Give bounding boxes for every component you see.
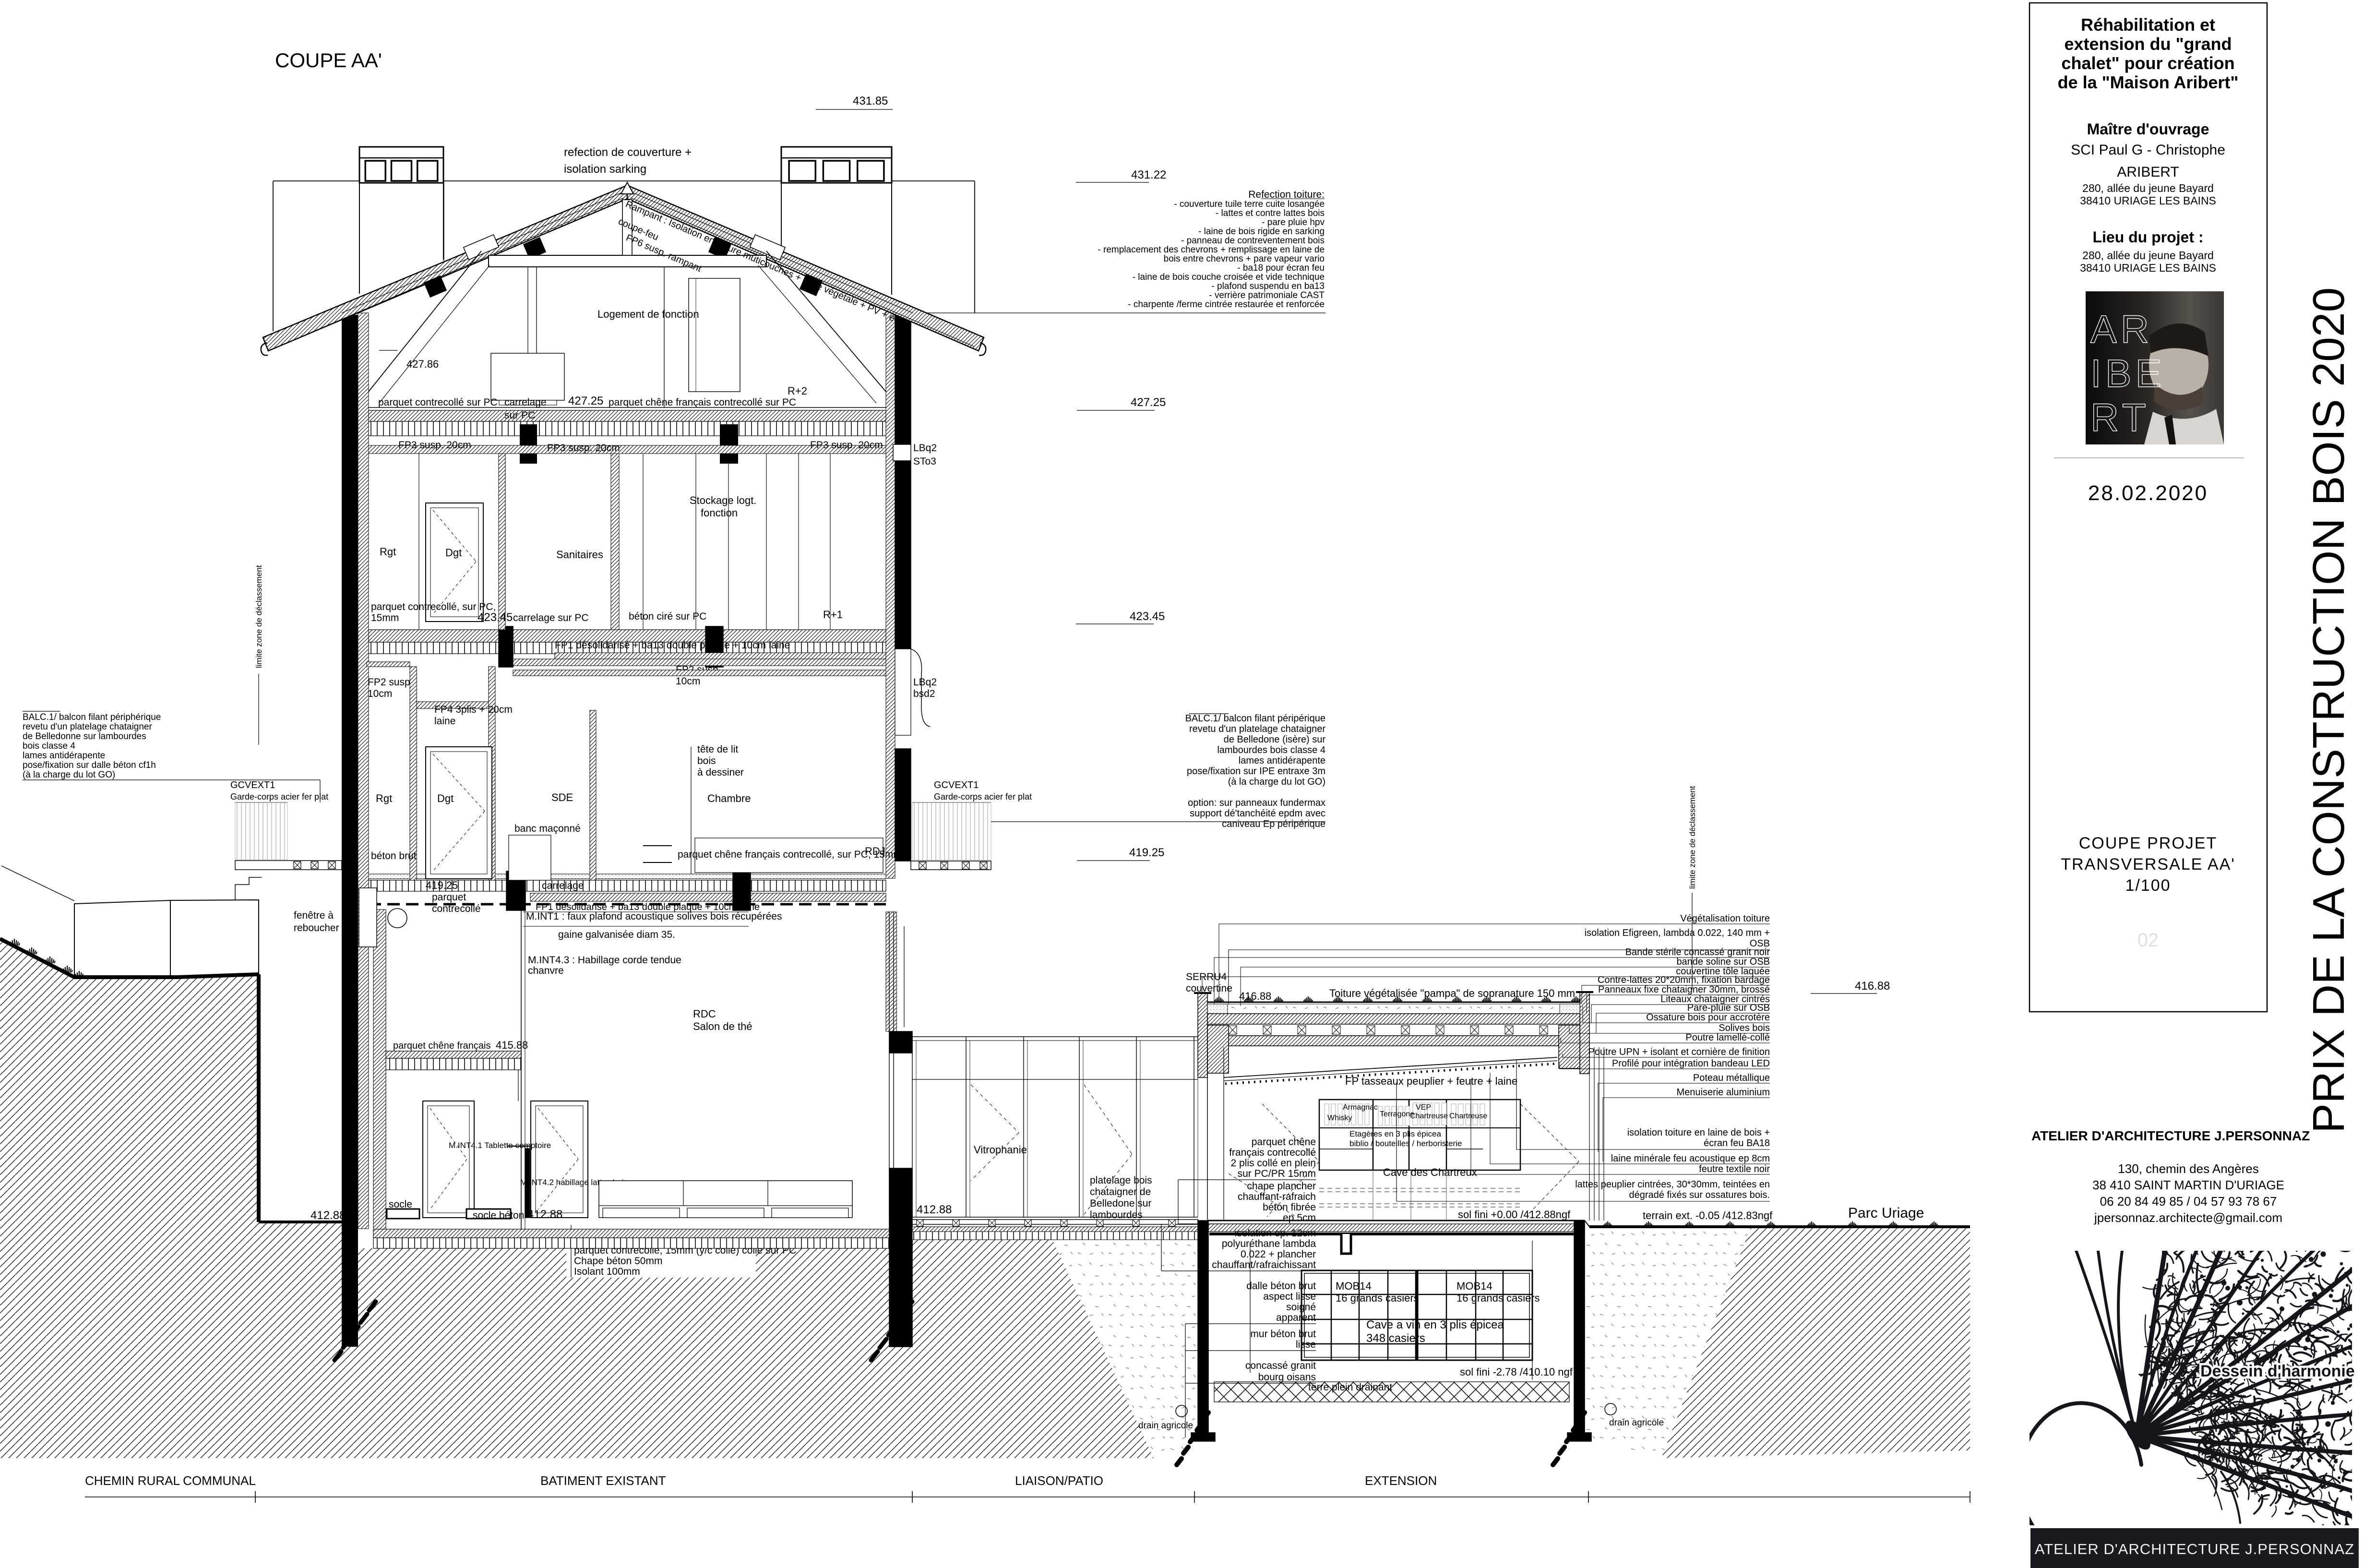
svg-text:VEP: VEP — [1416, 1103, 1431, 1112]
svg-text:R+2: R+2 — [788, 385, 807, 397]
svg-text:412.88: 412.88 — [527, 1208, 562, 1221]
svg-text:support dé'tanchéité epdm avec: support dé'tanchéité epdm avec — [1190, 808, 1325, 819]
svg-text:terre plein drainant: terre plein drainant — [1308, 1382, 1392, 1393]
svg-text:10cm: 10cm — [676, 676, 700, 687]
svg-text:416.88: 416.88 — [1855, 980, 1890, 993]
svg-text:apparent: apparent — [1276, 1312, 1316, 1323]
svg-text:bois: bois — [697, 755, 716, 766]
svg-text:- plafond suspendu en ba13: - plafond suspendu en ba13 — [1211, 281, 1325, 291]
svg-text:carrelage sur PC: carrelage sur PC — [513, 612, 589, 623]
svg-text:reboucher: reboucher — [294, 922, 339, 934]
svg-text:MOB14: MOB14 — [1457, 1280, 1492, 1292]
svg-text:348 casiers: 348 casiers — [1366, 1332, 1425, 1345]
svg-text:416.88: 416.88 — [1239, 990, 1271, 1002]
svg-text:parquet contrecollé sur PC: parquet contrecollé sur PC — [378, 397, 498, 408]
svg-text:- laine de bois couche croisée: - laine de bois couche croisée et vide t… — [1133, 272, 1325, 282]
svg-text:02: 02 — [2137, 930, 2159, 951]
svg-text:ep 5cm: ep 5cm — [1283, 1212, 1316, 1223]
svg-text:aspect lisse: aspect lisse — [1263, 1291, 1316, 1302]
svg-text:419.25: 419.25 — [426, 879, 458, 891]
svg-text:Garde-corps acier fer plat: Garde-corps acier fer plat — [230, 792, 328, 802]
svg-text:dégradé fixés sur ossatures bo: dégradé fixés sur ossatures bois. — [1629, 1190, 1770, 1200]
svg-text:423.45: 423.45 — [1130, 610, 1165, 623]
svg-text:427.25: 427.25 — [1131, 396, 1166, 409]
svg-text:carrelage: carrelage — [542, 880, 584, 891]
svg-text:LBq2: LBq2 — [913, 677, 937, 688]
svg-text:Bande stérile concassé granit: Bande stérile concassé granit noir — [1625, 947, 1770, 958]
svg-text:FP3 susp. 20cm: FP3 susp. 20cm — [398, 440, 471, 451]
svg-text:option: sur panneaux fundermax: option: sur panneaux fundermax — [1188, 798, 1325, 808]
svg-text:terrain ext. -0.05 /412.83ngf: terrain ext. -0.05 /412.83ngf — [1643, 1209, 1773, 1221]
svg-text:Dgt: Dgt — [437, 792, 454, 804]
svg-text:limite zone de déclassement: limite zone de déclassement — [1688, 786, 1697, 889]
svg-text:sur PC/PR 15mm: sur PC/PR 15mm — [1238, 1168, 1316, 1179]
svg-text:bande soline sur OSB: bande soline sur OSB — [1676, 957, 1770, 967]
svg-text:isolation Efigreen, lambda 0.0: isolation Efigreen, lambda 0.022, 140 mm… — [1585, 928, 1770, 938]
svg-text:412.88: 412.88 — [917, 1203, 952, 1216]
svg-text:Dgt: Dgt — [445, 547, 462, 559]
svg-text:415.88: 415.88 — [496, 1039, 528, 1051]
svg-text:sol fini -2.78 /410.10 ngf: sol fini -2.78 /410.10 ngf — [1460, 1366, 1573, 1378]
svg-text:PRIX DE LA CONSTRUCTION BOIS 2: PRIX DE LA CONSTRUCTION BOIS 2020 — [2304, 287, 2353, 1133]
svg-text:FP3 susp. 20cm: FP3 susp. 20cm — [810, 440, 883, 451]
svg-text:130, chemin des Angères: 130, chemin des Angères — [2118, 1161, 2258, 1176]
svg-text:Poteau métallique: Poteau métallique — [1693, 1073, 1770, 1083]
svg-text:Solives bois: Solives bois — [1719, 1023, 1770, 1033]
svg-text:LIAISON/PATIO: LIAISON/PATIO — [1015, 1473, 1103, 1488]
svg-text:- pare pluie hpv: - pare pluie hpv — [1262, 217, 1325, 227]
svg-text:Maître d'ouvrage: Maître d'ouvrage — [2087, 120, 2209, 138]
svg-text:Chape béton 50mm: Chape béton 50mm — [574, 1256, 662, 1267]
svg-text:bourg oisans: bourg oisans — [1258, 1372, 1316, 1383]
svg-text:Dessein d'harmonie: Dessein d'harmonie — [2200, 1362, 2355, 1380]
svg-text:chauffant/rafraichissant: chauffant/rafraichissant — [1212, 1259, 1316, 1270]
svg-text:AR: AR — [2090, 308, 2153, 351]
svg-text:- lattes et contre lattes bois: - lattes et contre lattes bois — [1216, 208, 1325, 218]
svg-text:chauffant-rafraich: chauffant-rafraich — [1238, 1191, 1316, 1202]
svg-text:ARIBERT: ARIBERT — [2117, 164, 2179, 180]
svg-text:fenêtre à: fenêtre à — [294, 910, 334, 921]
svg-text:chataigner de: chataigner de — [1090, 1186, 1151, 1197]
svg-text:banc maçonné: banc maçonné — [514, 823, 581, 834]
svg-text:STo3: STo3 — [913, 456, 936, 467]
svg-text:Isolant 100mm: Isolant 100mm — [574, 1266, 640, 1277]
svg-text:FP4 3plis + 20cm: FP4 3plis + 20cm — [434, 704, 513, 715]
svg-text:pose/fixation sur dalle béton: pose/fixation sur dalle béton cf1h — [23, 760, 156, 770]
svg-text:platelage bois: platelage bois — [1090, 1175, 1152, 1186]
svg-text:- couverture tuile terre cuite: - couverture tuile terre cuite losangée — [1174, 199, 1325, 209]
svg-text:Logement de fonction: Logement de fonction — [597, 308, 699, 320]
svg-text:mur béton brut: mur béton brut — [1250, 1329, 1316, 1340]
svg-text:lames antidérapente: lames antidérapente — [23, 751, 105, 761]
svg-text:Rgt: Rgt — [380, 546, 396, 558]
svg-text:à dessiner: à dessiner — [697, 767, 744, 778]
svg-text:pose/fixation sur IPE entraxe: pose/fixation sur IPE entraxe 3m — [1187, 766, 1325, 777]
svg-text:RT: RT — [2090, 396, 2150, 440]
svg-text:FP6 susp. rampant: FP6 susp. rampant — [624, 232, 703, 274]
svg-text:Cave a vin en 3 plis épicea: Cave a vin en 3 plis épicea — [1366, 1318, 1504, 1331]
svg-text:concassé granit: concassé granit — [1245, 1360, 1316, 1371]
svg-text:28.02.2020: 28.02.2020 — [2088, 481, 2208, 505]
svg-text:(à la charge du lot GO): (à la charge du lot GO) — [1228, 777, 1325, 787]
svg-text:38 410 SAINT MARTIN D'URIAGE: 38 410 SAINT MARTIN D'URIAGE — [2092, 1178, 2284, 1192]
svg-text:socle béton: socle béton — [473, 1210, 524, 1221]
svg-text:GCVEXT1: GCVEXT1 — [230, 780, 275, 790]
svg-text:M.INT4.3 : Habillage corde ten: M.INT4.3 : Habillage corde tendue — [528, 955, 681, 966]
svg-text:SCI Paul G - Christophe: SCI Paul G - Christophe — [2071, 142, 2225, 158]
svg-text:Profilé pour intégration bande: Profilé pour intégration bandeau LED — [1612, 1058, 1770, 1069]
svg-text:Etagères en 3 plis épicea: Etagères en 3 plis épicea — [1349, 1129, 1441, 1138]
svg-text:1/100: 1/100 — [2125, 876, 2171, 895]
svg-text:CHEMIN RURAL COMMUNAL: CHEMIN RURAL COMMUNAL — [85, 1473, 256, 1488]
svg-text:Belledone sur: Belledone sur — [1090, 1198, 1151, 1209]
svg-text:16 grands casiers: 16 grands casiers — [1336, 1292, 1419, 1304]
svg-text:- panneau de contreventement b: - panneau de contreventement bois — [1181, 236, 1325, 246]
svg-text:GCVEXT1: GCVEXT1 — [934, 780, 979, 790]
svg-text:419.25: 419.25 — [1129, 846, 1164, 859]
svg-text:refection de couverture +: refection de couverture + — [564, 146, 692, 159]
svg-text:chape plancher: chape plancher — [1247, 1181, 1316, 1192]
svg-text:- remplacement des chevrons +: - remplacement des chevrons + remplissag… — [1098, 245, 1325, 255]
svg-text:contrecollé: contrecollé — [432, 903, 481, 914]
svg-text:Whisky: Whisky — [1327, 1114, 1352, 1122]
svg-text:- ba18 pour écran feu: - ba18 pour écran feu — [1237, 263, 1325, 273]
svg-text:limite zone de déclassement: limite zone de déclassement — [254, 565, 263, 668]
svg-text:sol fini +0.00 /412.88ngf: sol fini +0.00 /412.88ngf — [1458, 1209, 1571, 1221]
svg-text:de Belledonne sur lambourdes: de Belledonne sur lambourdes — [23, 731, 146, 742]
svg-text:Garde-corps acier fer plat: Garde-corps acier fer plat — [934, 792, 1032, 802]
svg-text:parquet: parquet — [432, 892, 466, 903]
svg-text:Salon de thé: Salon de thé — [693, 1020, 752, 1032]
svg-text:laine: laine — [434, 716, 455, 727]
svg-text:lattes peuplier cintrées, 30*3: lattes peuplier cintrées, 30*30mm, teint… — [1575, 1179, 1770, 1190]
svg-text:(à la charge du lot GO): (à la charge du lot GO) — [23, 770, 115, 780]
svg-text:tête de lit: tête de lit — [697, 744, 738, 755]
svg-text:biblio / bouteilles / herboris: biblio / bouteilles / herboristerie — [1349, 1139, 1462, 1148]
svg-text:béton fibrée: béton fibrée — [1263, 1202, 1316, 1213]
svg-text:Stockage logt.: Stockage logt. — [690, 494, 756, 506]
svg-text:M.INT4.1 Tablette comptoire: M.INT4.1 Tablette comptoire — [449, 1141, 551, 1150]
svg-text:parquet chêne français contrec: parquet chêne français contrecollé sur P… — [609, 397, 796, 408]
svg-text:Chartreuse: Chartreuse — [1449, 1112, 1487, 1120]
svg-text:Panneaux fixe chataigner 30mm,: Panneaux fixe chataigner 30mm, brossé — [1598, 984, 1770, 995]
svg-text:Poutre UPN + isolant et corniè: Poutre UPN + isolant et cornière de fini… — [1588, 1047, 1770, 1057]
svg-text:431.22: 431.22 — [1131, 168, 1166, 181]
svg-text:Réhabilitation et: Réhabilitation et — [2081, 15, 2215, 35]
svg-text:jpersonnaz.architecte@gmail.co: jpersonnaz.architecte@gmail.com — [2094, 1210, 2282, 1225]
svg-text:isolation toiture en laine de: isolation toiture en laine de bois + — [1627, 1127, 1770, 1138]
svg-text:Chambre: Chambre — [707, 792, 751, 804]
svg-text:Végétalisation toiture: Végétalisation toiture — [1680, 913, 1770, 924]
svg-text:lisse: lisse — [1296, 1339, 1316, 1350]
svg-text:Sanitaires: Sanitaires — [556, 549, 603, 561]
svg-text:COUPE AA': COUPE AA' — [275, 49, 382, 72]
svg-text:Toiture végétalisée "pampa" de: Toiture végétalisée "pampa" de sopranatu… — [1329, 987, 1575, 999]
svg-text:FP2 susp.: FP2 susp. — [368, 677, 413, 688]
svg-text:caniveau Ep péripérique: caniveau Ep péripérique — [1222, 819, 1325, 829]
svg-text:423.45: 423.45 — [478, 611, 513, 624]
svg-text:béton brut: béton brut — [371, 850, 417, 862]
svg-text:Chartreuse: Chartreuse — [1410, 1112, 1448, 1120]
svg-text:soigné: soigné — [1286, 1302, 1316, 1313]
svg-text:écran feu BA18: écran feu BA18 — [1704, 1138, 1770, 1149]
svg-text:bois entre chevrons + pare vap: bois entre chevrons + pare vapeur vario — [1164, 254, 1325, 264]
svg-text:FP1 désolidarisé + ba13 double: FP1 désolidarisé + ba13 double plaque + … — [555, 640, 790, 651]
svg-text:0.022 + plancher: 0.022 + plancher — [1241, 1249, 1316, 1260]
svg-text:BATIMENT EXISTANT: BATIMENT EXISTANT — [540, 1473, 666, 1488]
svg-text:38410 URIAGE LES BAINS: 38410 URIAGE LES BAINS — [2080, 262, 2216, 274]
svg-text:feutre textile noir: feutre textile noir — [1699, 1164, 1770, 1174]
svg-text:Terragone: Terragone — [1380, 1110, 1414, 1118]
svg-text:427.86: 427.86 — [406, 358, 439, 370]
svg-text:IBE: IBE — [2090, 352, 2165, 395]
svg-text:RDC: RDC — [693, 1008, 716, 1020]
svg-text:Pare-pluie sur OSB: Pare-pluie sur OSB — [1687, 1003, 1770, 1013]
svg-text:ATELIER D'ARCHITECTURE J.PERSO: ATELIER D'ARCHITECTURE J.PERSONNAZ — [2031, 1128, 2310, 1143]
svg-text:FP3 susp. 20cm: FP3 susp. 20cm — [547, 443, 620, 454]
svg-text:Contre-lattes 20*20mm, fixatio: Contre-lattes 20*20mm, fixation bardage — [1598, 975, 1770, 985]
svg-text:revetu d'un platelage chataign: revetu d'un platelage chataigner — [23, 722, 152, 732]
svg-text:dalle béton brut: dalle béton brut — [1246, 1281, 1316, 1292]
svg-text:412.88: 412.88 — [310, 1209, 346, 1222]
svg-text:COUPE PROJET: COUPE PROJET — [2079, 834, 2217, 852]
svg-text:Menuiserie aluminium: Menuiserie aluminium — [1676, 1087, 1770, 1098]
svg-text:extension du "grand: extension du "grand — [2064, 34, 2232, 54]
svg-text:parquet chêne: parquet chêne — [1252, 1137, 1316, 1148]
svg-text:- verrière patrimoniale CAST: - verrière patrimoniale CAST — [1209, 290, 1325, 300]
svg-text:lambourdes bois classe 4: lambourdes bois classe 4 — [1217, 745, 1325, 755]
svg-text:carrelage: carrelage — [504, 397, 547, 408]
svg-text:chanvre: chanvre — [528, 965, 564, 976]
svg-text:drain agricole: drain agricole — [1138, 1421, 1193, 1431]
svg-text:RDJ: RDJ — [865, 845, 885, 857]
svg-text:polyuréthane lambda: polyuréthane lambda — [1222, 1238, 1316, 1249]
svg-text:lames antidérapente: lames antidérapente — [1239, 755, 1325, 766]
svg-text:- laine de bois rigide en sark: - laine de bois rigide en sarking — [1198, 227, 1325, 237]
svg-text:Cave des Chartreux: Cave des Chartreux — [1383, 1166, 1477, 1178]
svg-text:sur PC: sur PC — [504, 410, 535, 421]
svg-text:427.25: 427.25 — [568, 395, 603, 407]
svg-text:Lieu du projet :: Lieu du projet : — [2092, 228, 2203, 246]
svg-text:français contrecollé: français contrecollé — [1229, 1147, 1316, 1158]
svg-text:de Belledone (isère) sur: de Belledone (isère) sur — [1224, 734, 1326, 745]
svg-text:SDE: SDE — [551, 791, 573, 803]
svg-text:R+1: R+1 — [823, 609, 843, 621]
svg-text:EXTENSION: EXTENSION — [1365, 1473, 1437, 1488]
svg-text:laine minérale feu acoustique: laine minérale feu acoustique ep 8cm — [1611, 1153, 1770, 1164]
svg-text:revetu d'un platelage chataign: revetu d'un platelage chataigner — [1189, 724, 1325, 734]
svg-text:lambourdes: lambourdes — [1090, 1209, 1143, 1221]
svg-text:fonction: fonction — [701, 507, 738, 519]
svg-text:isolation sarking: isolation sarking — [564, 163, 646, 176]
svg-text:LBq2: LBq2 — [913, 443, 937, 454]
svg-text:10cm: 10cm — [368, 688, 392, 699]
svg-text:parquet chêne français: parquet chêne français — [393, 1041, 490, 1051]
svg-text:chalet" pour création: chalet" pour création — [2061, 53, 2234, 73]
svg-text:Parc Uriage: Parc Uriage — [1848, 1205, 1924, 1221]
svg-text:de la "Maison Aribert": de la "Maison Aribert" — [2058, 72, 2239, 92]
svg-text:béton ciré sur PC: béton ciré sur PC — [629, 611, 706, 622]
svg-text:06 20 84 49 85 / 04 57 93 78 6: 06 20 84 49 85 / 04 57 93 78 67 — [2100, 1194, 2277, 1209]
svg-text:- charpente /ferme cintrée res: - charpente /ferme cintrée restaurée et … — [1128, 299, 1325, 310]
svg-text:bsd2: bsd2 — [913, 688, 935, 699]
svg-text:ATELIER D'ARCHITECTURE J.PERSO: ATELIER D'ARCHITECTURE J.PERSONNAZ — [2035, 1541, 2354, 1557]
svg-text:isolation ep. 12cm: isolation ep. 12cm — [1235, 1228, 1316, 1239]
svg-text:Poutre lamellé-collé: Poutre lamellé-collé — [1685, 1032, 1770, 1043]
svg-text:Armagnac: Armagnac — [1343, 1103, 1378, 1112]
svg-text:gaine galvanisée diam 35.: gaine galvanisée diam 35. — [558, 929, 675, 940]
svg-text:FP tasseaux peuplier + feutre: FP tasseaux peuplier + feutre + laine — [1345, 1075, 1517, 1087]
svg-text:16 grands casiers: 16 grands casiers — [1457, 1292, 1540, 1304]
svg-text:2 plis collé en plein: 2 plis collé en plein — [1231, 1158, 1316, 1169]
svg-text:couvertine: couvertine — [1186, 983, 1232, 994]
svg-text:38410 URIAGE LES BAINS: 38410 URIAGE LES BAINS — [2080, 194, 2216, 207]
svg-text:MOB14: MOB14 — [1336, 1280, 1372, 1292]
svg-text:15mm: 15mm — [371, 612, 399, 623]
svg-text:bois classe 4: bois classe 4 — [23, 741, 75, 751]
svg-text:BALC.1/ balcon filant péripéri: BALC.1/ balcon filant péripérique — [1185, 713, 1325, 724]
svg-text:TRANSVERSALE AA': TRANSVERSALE AA' — [2061, 855, 2235, 874]
svg-text:M.INT1 : faux plafond acoustiq: M.INT1 : faux plafond acoustique solives… — [526, 911, 782, 922]
svg-text:Ossature bois pour accrotère: Ossature bois pour accrotère — [1646, 1012, 1770, 1023]
svg-text:drain agricole: drain agricole — [1609, 1418, 1664, 1428]
svg-text:280, allée du jeune Bayard: 280, allée du jeune Bayard — [2082, 182, 2214, 194]
svg-text:280, allée du jeune Bayard: 280, allée du jeune Bayard — [2082, 249, 2214, 262]
svg-text:431.85: 431.85 — [853, 95, 888, 108]
svg-text:Vitrophanie: Vitrophanie — [974, 1144, 1027, 1156]
svg-text:BALC.1/ balcon filant périphér: BALC.1/ balcon filant périphérique — [23, 712, 161, 722]
svg-text:Rgt: Rgt — [376, 792, 392, 804]
